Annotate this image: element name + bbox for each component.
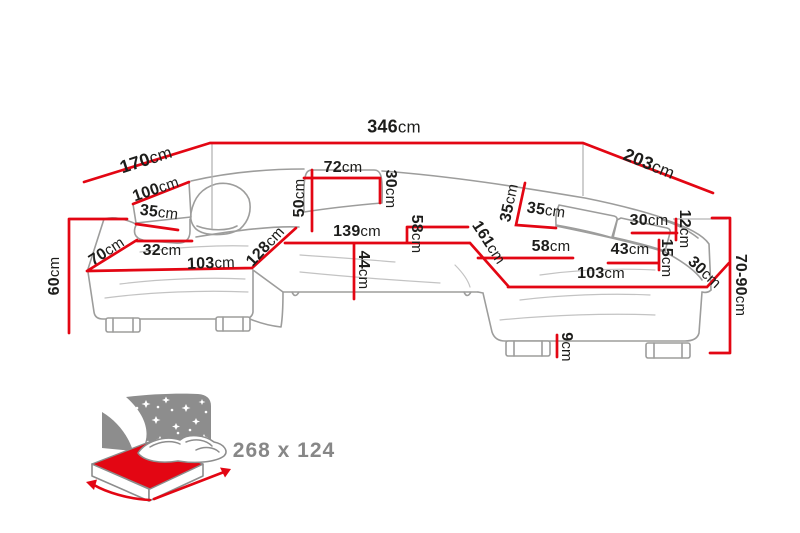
left-armrest	[88, 218, 136, 269]
backrest-top-edge	[191, 169, 663, 218]
sofa-dimension-diagram: 346cm170cm203cm100cm35cm70cm32cm103cm60c…	[0, 0, 800, 533]
right-headrest-panel-2	[612, 218, 670, 251]
dimension-lines	[69, 143, 730, 357]
sofa-bed-sleeping-function-icon	[86, 394, 231, 501]
sofa-legs	[106, 317, 690, 358]
extension-lines	[212, 144, 727, 229]
left-pillow-crease	[197, 226, 237, 230]
right-chaise	[478, 290, 711, 341]
bed-headboard-swoosh	[102, 412, 133, 451]
middle-headrest-panel	[304, 170, 382, 212]
seat-back-seams	[196, 226, 665, 252]
bed-dimensions-label: 268 x 124	[233, 439, 335, 463]
left-headrest-panel	[133, 182, 191, 223]
diagram-canvas	[0, 0, 800, 533]
middle-base-edge	[283, 292, 478, 296]
